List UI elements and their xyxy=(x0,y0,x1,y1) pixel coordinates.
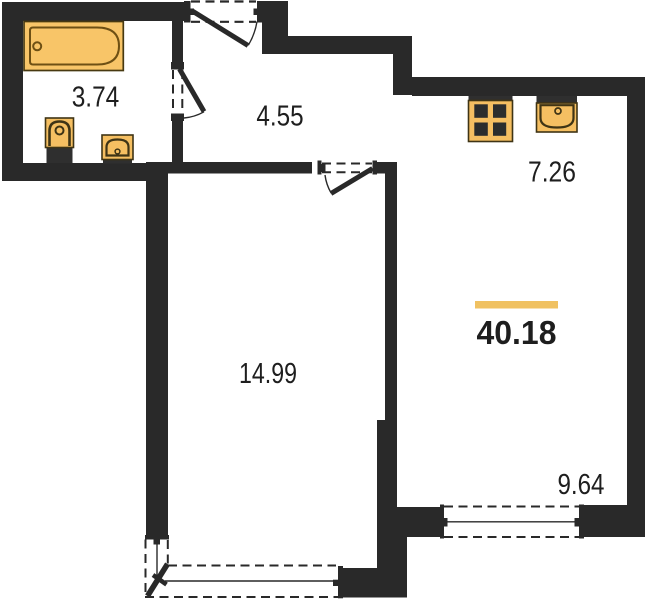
svg-text:3.74: 3.74 xyxy=(72,82,120,114)
svg-text:7.26: 7.26 xyxy=(528,156,576,188)
svg-text:4.55: 4.55 xyxy=(256,101,303,133)
svg-text:9.64: 9.64 xyxy=(558,469,605,501)
svg-text:40.18: 40.18 xyxy=(477,314,557,351)
svg-text:14.99: 14.99 xyxy=(239,358,297,390)
